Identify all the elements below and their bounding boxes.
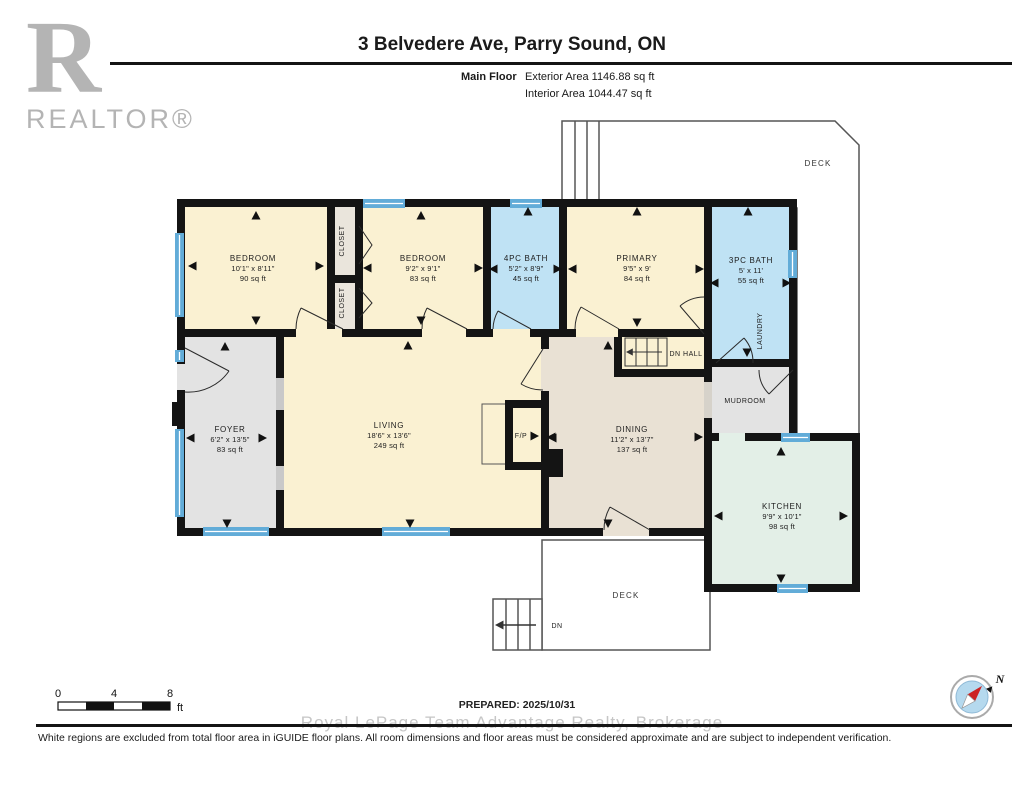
label-bath4pc-name: 4PC BATH (504, 254, 548, 263)
compass-icon: N (951, 672, 1006, 718)
label-primary-dims: 9'5" x 9' (623, 264, 651, 273)
label-living-area: 249 sq ft (374, 441, 405, 450)
label-foyer-area: 83 sq ft (217, 445, 244, 454)
label-primary-area: 84 sq ft (624, 274, 651, 283)
realtor-wordmark: REALTOR® (26, 104, 195, 135)
label-bedroom2-dims: 9'2" x 9'1" (406, 264, 441, 273)
scale-tick-8: 8 (167, 688, 173, 700)
label-dining-area: 137 sq ft (617, 445, 648, 454)
label-bedroom1-dims: 10'1" x 8'11" (231, 264, 274, 273)
label-laundry: LAUNDRY (757, 313, 764, 350)
label-dining-dims: 11'2" x 13'7" (610, 435, 653, 444)
label-bedroom1-area: 90 sq ft (240, 274, 267, 283)
scale-tick-0: 0 (55, 688, 61, 700)
label-fireplace: F/P (515, 433, 527, 440)
label-bedroom2-name: BEDROOM (400, 254, 446, 263)
label-foyer-dims: 6'2" x 13'5" (210, 435, 249, 444)
realtor-logo: R REALTOR® (26, 6, 195, 135)
label-bath4pc-area: 45 sq ft (513, 274, 540, 283)
deck-bottom-area (493, 540, 710, 650)
footer-divider (36, 724, 1012, 727)
label-closet-top: CLOSET (339, 225, 346, 256)
label-mudroom: MUDROOM (724, 398, 765, 405)
disclaimer-text: White regions are excluded from total fl… (38, 732, 998, 744)
label-bath4pc-dims: 5'2" x 8'9" (509, 264, 544, 273)
scale-tick-4: 4 (111, 688, 117, 700)
label-dn: DN (551, 623, 562, 630)
label-closet-bottom: CLOSET (339, 287, 346, 318)
label-foyer-name: FOYER (214, 425, 245, 434)
compass-north-label: N (995, 672, 1006, 686)
label-primary-name: PRIMARY (616, 254, 657, 263)
label-bath3pc-name: 3PC BATH (729, 256, 773, 265)
label-deck-top: DECK (804, 159, 831, 168)
label-bath3pc-dims: 5' x 11' (739, 266, 764, 275)
floorplan-page: R REALTOR® 3 Belvedere Ave, Parry Sound,… (0, 0, 1024, 791)
label-kitchen-dims: 9'9" x 10'1" (762, 512, 801, 521)
brokerage-watermark: Royal LePage Team Advantage Realty, Brok… (0, 713, 1024, 733)
label-deck-bottom: DECK (612, 591, 639, 600)
label-dining-name: DINING (616, 425, 648, 434)
label-bedroom2-area: 83 sq ft (410, 274, 437, 283)
realtor-logo-r: R (26, 6, 195, 110)
label-living-name: LIVING (374, 421, 404, 430)
label-dn-hall: DN HALL (669, 351, 702, 358)
label-kitchen-name: KITCHEN (762, 502, 802, 511)
prepared-date: PREPARED: 2025/10/31 (459, 699, 576, 711)
label-bedroom1-name: BEDROOM (230, 254, 276, 263)
label-bath3pc-area: 55 sq ft (738, 276, 765, 285)
label-living-dims: 18'6" x 13'6" (367, 431, 411, 440)
label-kitchen-area: 98 sq ft (769, 522, 796, 531)
scale-bar: 0 4 8 ft (55, 688, 183, 714)
foyer-wall-bump (172, 402, 185, 426)
